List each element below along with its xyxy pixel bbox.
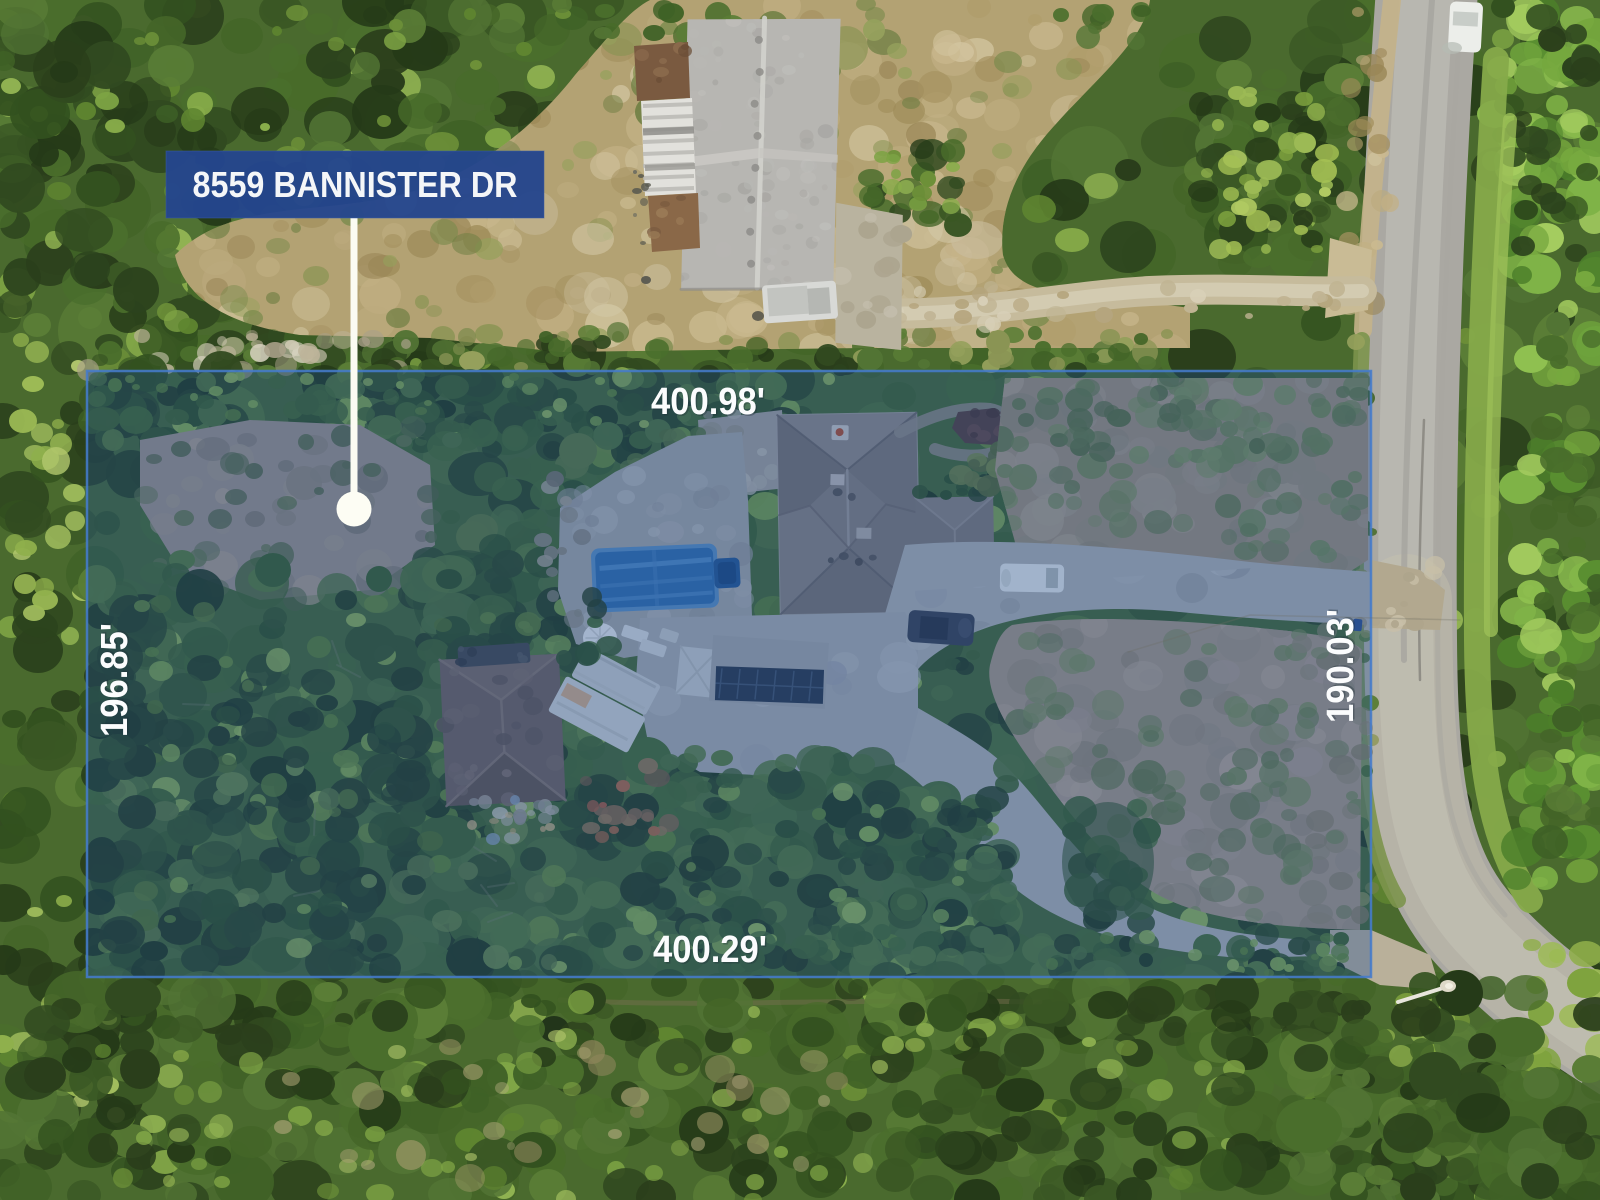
svg-text:400.98': 400.98' bbox=[651, 381, 765, 423]
svg-text:190.03': 190.03' bbox=[1320, 609, 1362, 723]
svg-text:400.29': 400.29' bbox=[653, 929, 767, 971]
svg-text:8559 BANNISTER DR: 8559 BANNISTER DR bbox=[193, 164, 518, 205]
svg-text:196.85': 196.85' bbox=[94, 623, 136, 737]
